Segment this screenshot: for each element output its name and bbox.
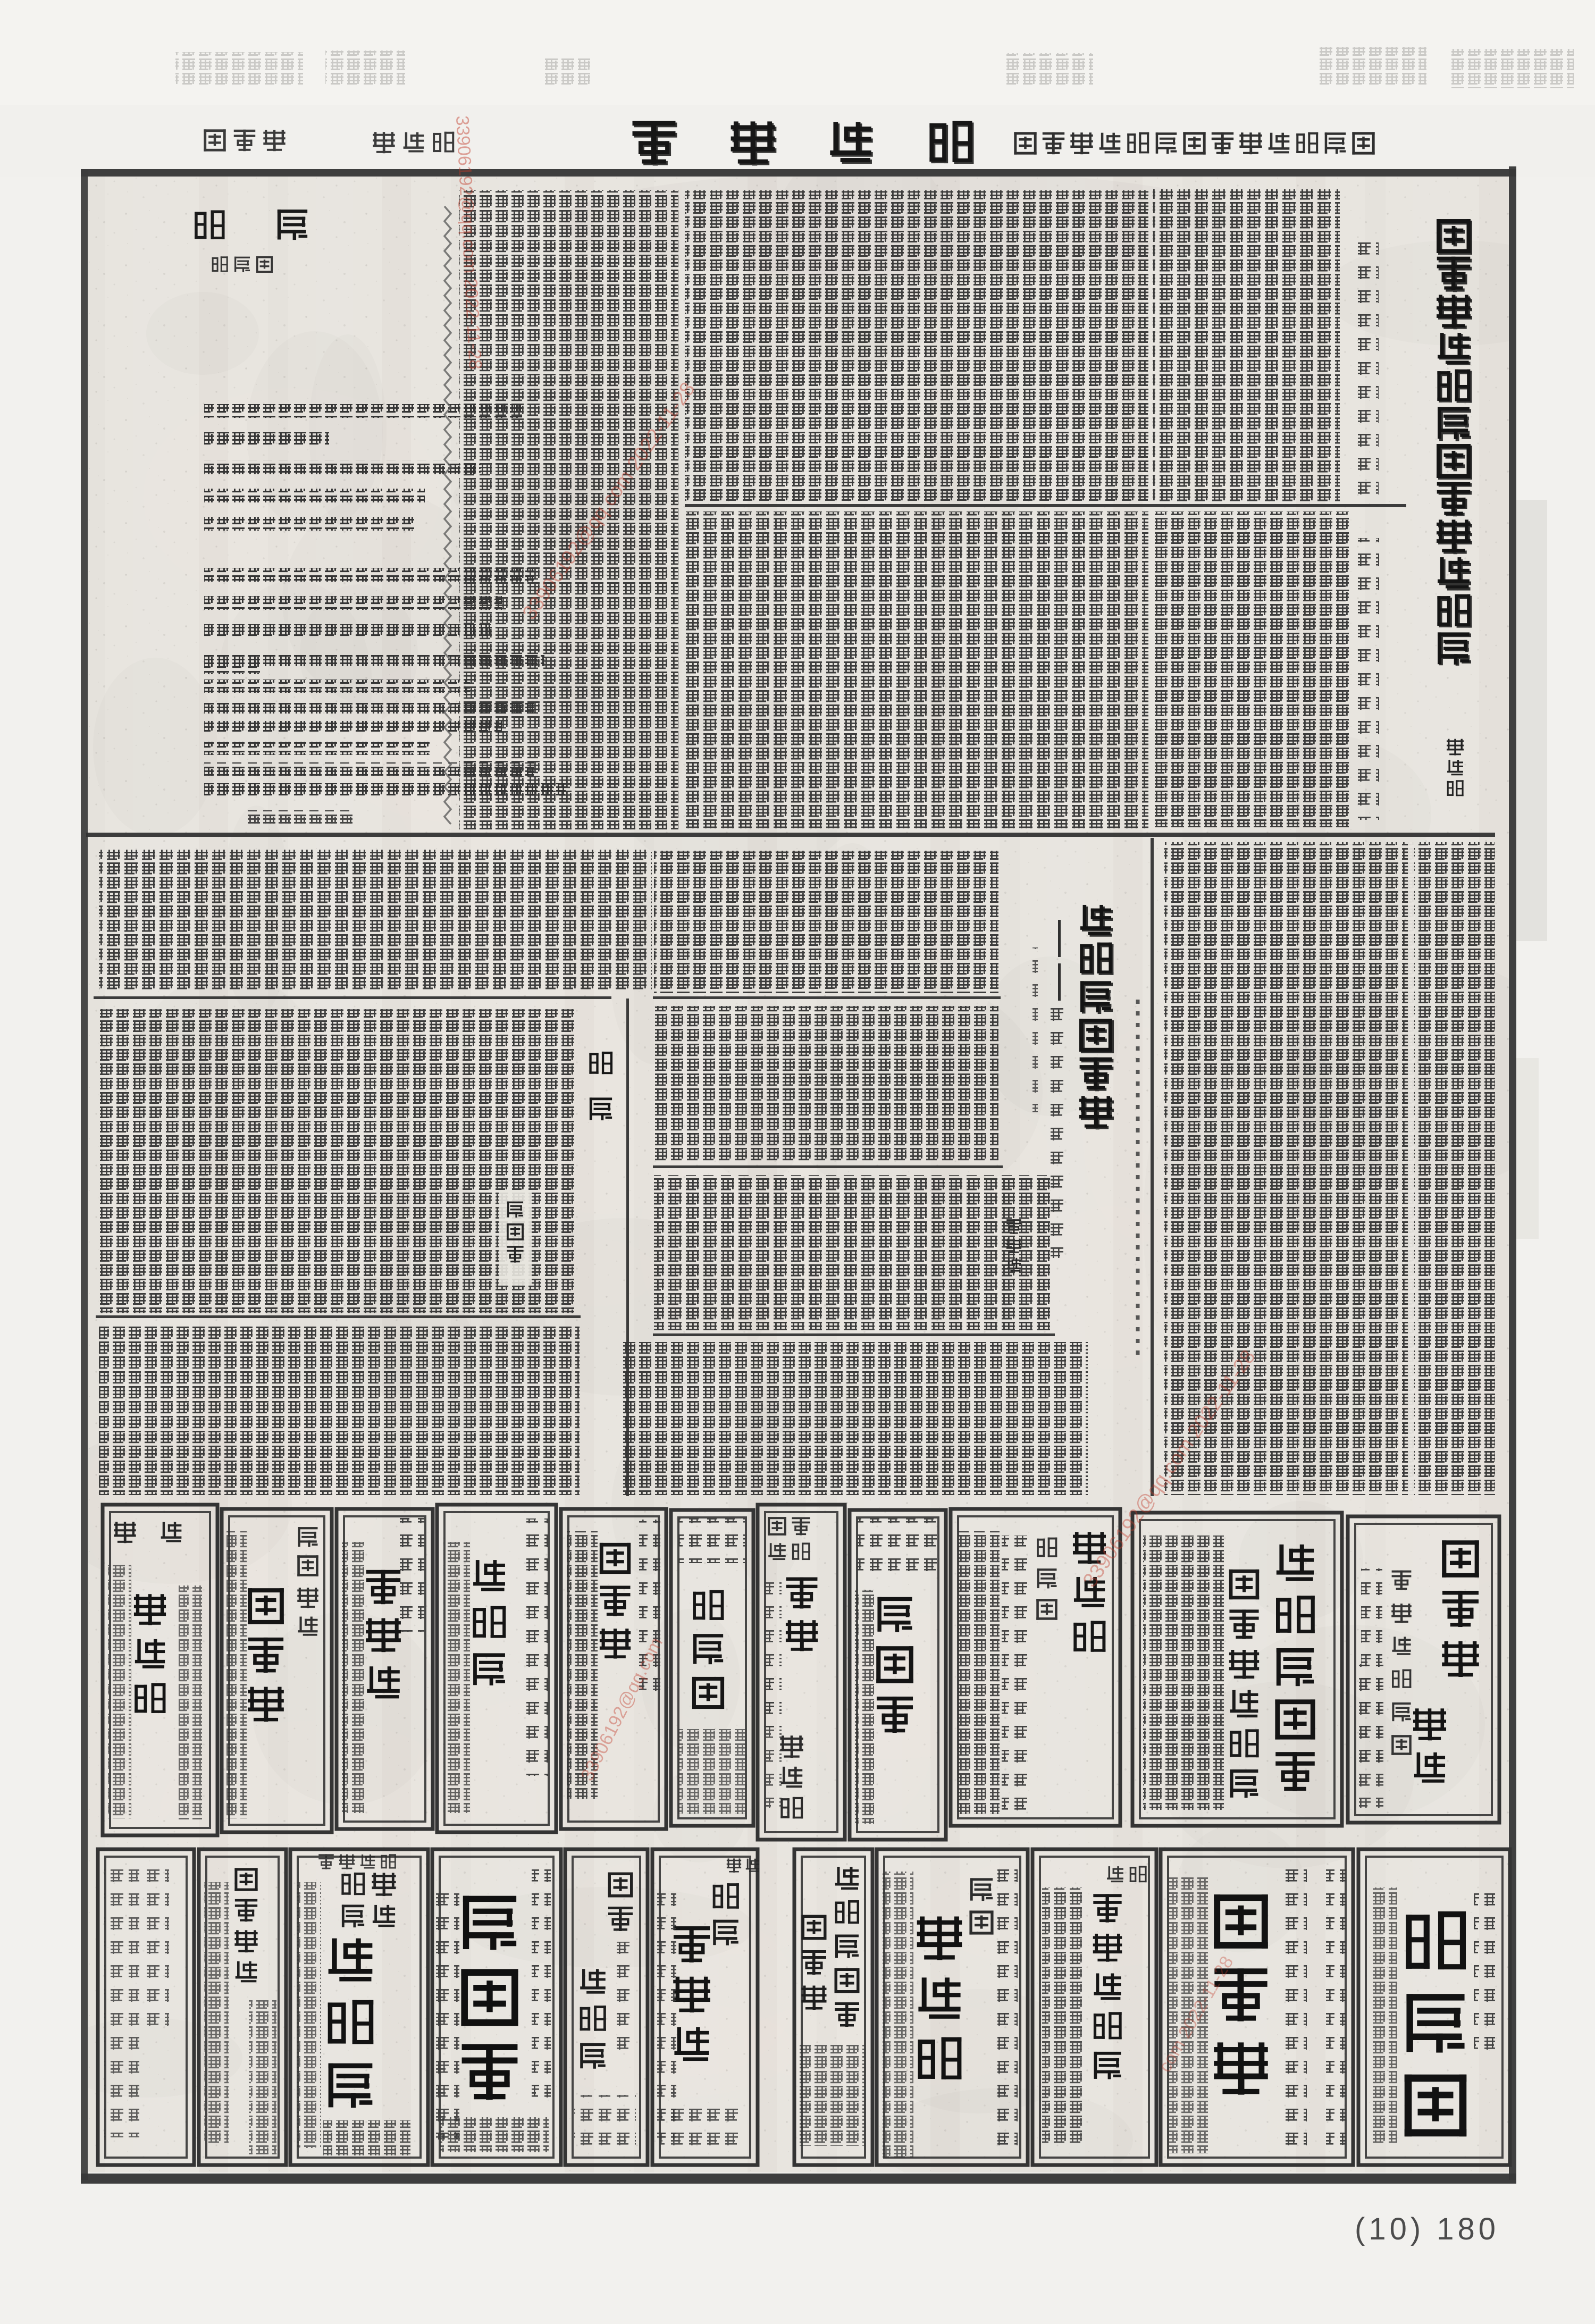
svg-text:(10) 180: (10) 180	[1355, 2212, 1499, 2246]
